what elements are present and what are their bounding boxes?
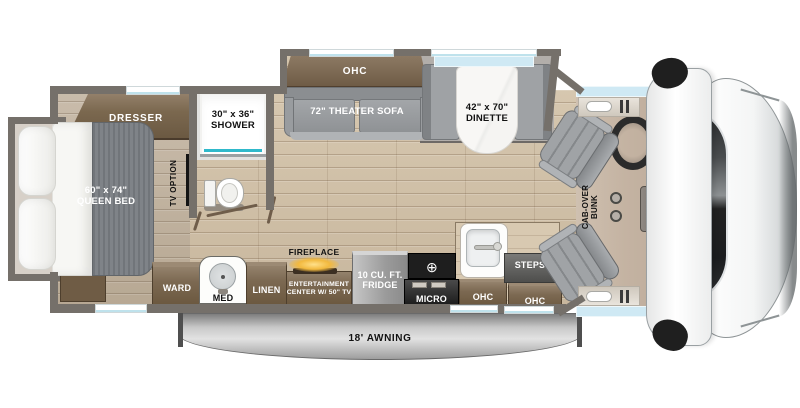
wall-bath-right <box>266 90 274 210</box>
shower-teal-strip <box>204 149 262 152</box>
fireplace-glow <box>289 257 339 272</box>
entry-window <box>504 306 554 314</box>
entertainment-center: ENTERTAINMENT CENTER W/ 50" TV <box>286 271 352 306</box>
wall-bath-left <box>189 90 197 218</box>
micro-vent <box>431 282 446 288</box>
bed-name-text: QUEEN BED <box>56 197 156 208</box>
pillow <box>18 126 56 196</box>
linen-cabinet: LINEN <box>246 262 287 306</box>
sofa-label: 72" THEATER SOFA <box>284 107 430 118</box>
dinette-table: 42" x 70" DINETTE <box>456 66 518 154</box>
bunk-line2: BUNK <box>590 171 599 243</box>
awning-bar: 18' AWNING <box>178 313 582 360</box>
ward-label: WARD <box>153 283 201 293</box>
bunk-line1: CAB-OVER <box>581 171 590 243</box>
galley-window <box>450 305 498 313</box>
wall-left-upper <box>50 86 58 124</box>
dinette-bench-left <box>422 64 460 140</box>
ohc-mid-label: OHC <box>460 292 506 302</box>
kitchen-faucet-base <box>493 242 502 251</box>
fridge-label: 10 CU. FT. FRIDGE <box>353 270 407 291</box>
awning-end-left <box>178 313 183 347</box>
cab-door-handle-top <box>586 101 612 112</box>
sofa-front-lip <box>290 132 424 140</box>
micro-label: MICRO <box>405 294 458 304</box>
vanity-sink-drain <box>221 275 225 279</box>
med-label: MED <box>200 293 246 303</box>
shower-track <box>200 154 266 157</box>
fridge-line2: FRIDGE <box>353 280 407 290</box>
cupholder <box>610 210 622 222</box>
cupholder <box>610 192 622 204</box>
wardrobe: WARD <box>152 262 202 306</box>
sofa-window <box>309 49 394 57</box>
vehicle-grille-shade <box>779 100 797 316</box>
linen-label: LINEN <box>247 285 286 295</box>
shower-name-text: SHOWER <box>200 121 266 132</box>
bedroom-window-top <box>126 86 180 95</box>
queen-bed-label: 60" x 74" QUEEN BED <box>56 186 156 208</box>
dinette-name-text: DINETTE <box>447 114 527 125</box>
awning-end-right <box>577 313 582 347</box>
ent-line1: ENTERTAINMENT <box>284 281 354 289</box>
cab-door-handle-bottom <box>586 291 612 302</box>
cab-roof-band <box>646 68 712 346</box>
door-hinge <box>620 100 623 113</box>
ent-line2: CENTER W/ 50" TV <box>284 289 354 297</box>
micro-vent <box>412 282 427 288</box>
dinette-window-glass <box>434 56 534 67</box>
toilet-tank <box>204 180 216 207</box>
fridge: 10 CU. FT. FRIDGE <box>352 251 408 311</box>
rv-floorplan: 18' AWNING DRESSER 60" x 74" QUEEN BED T… <box>0 0 800 408</box>
fridge-line1: 10 CU. FT. <box>353 270 407 280</box>
shower: 30" x 36" SHOWER <box>197 90 269 160</box>
wall-slide-left <box>280 49 287 93</box>
shower-label: 30" x 36" SHOWER <box>200 110 266 132</box>
fireplace-label: FIREPLACE <box>282 248 346 258</box>
pillow <box>18 198 56 270</box>
ohc-cabinet-top: OHC <box>281 55 429 89</box>
med-vanity: MED <box>199 256 247 304</box>
bedroom-window-bottom <box>95 304 147 313</box>
cooktop: ⊕ <box>408 253 456 279</box>
cooktop-burner-icon: ⊕ <box>409 259 455 275</box>
toilet-seat <box>221 183 238 203</box>
awning-label: 18' AWNING <box>179 333 581 345</box>
cab-over-bunk-label: CAB-OVER BUNK <box>581 171 603 243</box>
ohc-cabinet-mid: OHC <box>459 279 507 307</box>
door-hinge <box>626 290 629 303</box>
entertainment-label: ENTERTAINMENT CENTER W/ 50" TV <box>284 281 354 297</box>
door-hinge <box>620 290 623 303</box>
dinette-label: 42" x 70" DINETTE <box>447 103 527 125</box>
tv-option-label: TV OPTION <box>169 153 181 213</box>
door-hinge <box>626 100 629 113</box>
theater-sofa: 72" THEATER SOFA <box>284 87 430 141</box>
ohc-top-label: OHC <box>281 66 429 78</box>
